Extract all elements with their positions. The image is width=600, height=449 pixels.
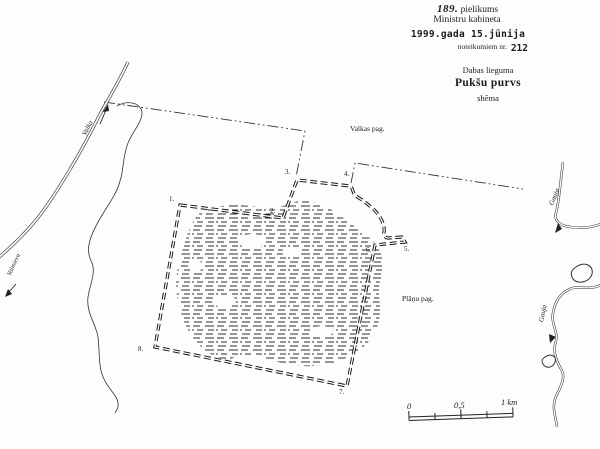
oxbow-lake-icon [571, 264, 592, 282]
river-gauja-upper [555, 162, 600, 233]
boundary-point-7: 7. [339, 388, 344, 396]
parish-label-planu: Plāņu pag. [402, 294, 434, 303]
boundary-point-3: 3. [285, 168, 290, 176]
scale-label-05: 0,5 [454, 400, 465, 410]
parish-boundary [104, 102, 523, 189]
page-title: Pukšu purvs [437, 77, 539, 89]
regulation-date: 1999.gada 15.jūnija [404, 29, 532, 40]
regulation-number: 212 [511, 43, 528, 54]
boundary-point-6: 6. [366, 246, 371, 254]
boundary-point-2: 2. [270, 207, 275, 215]
annex-word: pielikums [461, 5, 498, 15]
boundary-point-8: 8. [138, 345, 143, 353]
annex-number: 189. [437, 3, 458, 15]
reserve-category: Dabas lieguma [437, 65, 539, 75]
cabinet-line: Ministru kabineta [403, 15, 531, 25]
river-gauja-lower [542, 264, 600, 427]
oxbow-lake-icon [542, 355, 555, 367]
regulation-line: noteikumiem nr. 212 [414, 41, 526, 52]
regulation-prefix: noteikumiem nr. [458, 42, 507, 51]
boundary-point-5: 5. [404, 245, 409, 253]
parish-label-valkas: Valkas pag. [350, 124, 385, 133]
scale-label-1km: 1 km [501, 397, 517, 407]
stream-left [88, 103, 142, 413]
marsh-area [176, 201, 383, 366]
annex-line: 189. pielikums [415, 3, 520, 15]
boundary-point-1: 1. [169, 195, 174, 203]
boundary-point-4: 4. [344, 170, 349, 178]
document-type: shēma [437, 93, 539, 103]
scale-label-0: 0 [407, 401, 411, 411]
